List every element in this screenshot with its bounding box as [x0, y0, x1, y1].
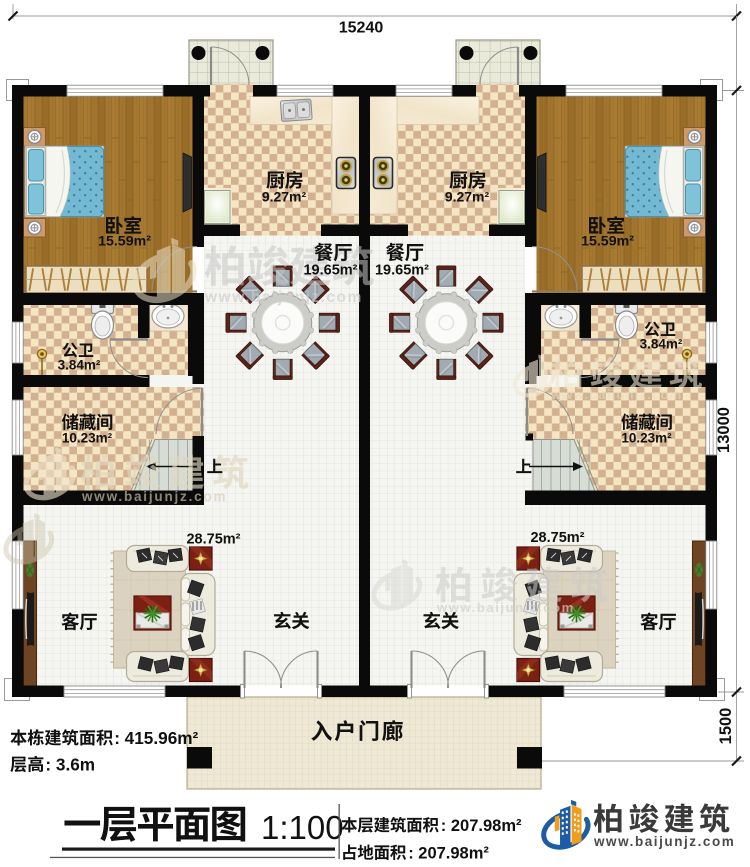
svg-text:28.75m²: 28.75m² [530, 530, 584, 546]
svg-text:www.baijunjz.com: www.baijunjz.com [593, 834, 735, 849]
svg-text:3.84m²: 3.84m² [640, 337, 683, 352]
svg-text:3.84m²: 3.84m² [58, 358, 101, 373]
svg-text:1500: 1500 [717, 708, 735, 745]
svg-text:1:100: 1:100 [261, 809, 344, 846]
svg-text:: 207.98m²: : 207.98m² [408, 845, 489, 863]
svg-text:15.59m²: 15.59m² [98, 233, 151, 249]
svg-text:: 415.96m²: : 415.96m² [114, 728, 198, 748]
svg-text:10.23m²: 10.23m² [621, 431, 672, 446]
svg-text:13000: 13000 [715, 407, 733, 453]
svg-text:: 207.98m²: : 207.98m² [441, 817, 522, 835]
svg-text:www.baijunjz.com: www.baijunjz.com [204, 289, 363, 306]
svg-text:9.27m²: 9.27m² [262, 189, 307, 205]
svg-text:15.59m²: 15.59m² [581, 233, 634, 249]
svg-text:19.65m²: 19.65m² [375, 263, 429, 279]
svg-text:www.baijunjz.com: www.baijunjz.com [81, 489, 227, 504]
svg-text:15240: 15240 [339, 20, 384, 37]
svg-text:28.75m²: 28.75m² [186, 532, 240, 548]
svg-text:19.65m²: 19.65m² [303, 263, 357, 279]
svg-text:10.23m²: 10.23m² [62, 431, 113, 446]
svg-text:www.baijunjz.com: www.baijunjz.com [550, 387, 682, 402]
svg-text:9.27m²: 9.27m² [445, 189, 490, 205]
svg-text:: 3.6m: : 3.6m [45, 755, 95, 775]
svg-text:www.baijunjz.com: www.baijunjz.com [436, 600, 575, 615]
